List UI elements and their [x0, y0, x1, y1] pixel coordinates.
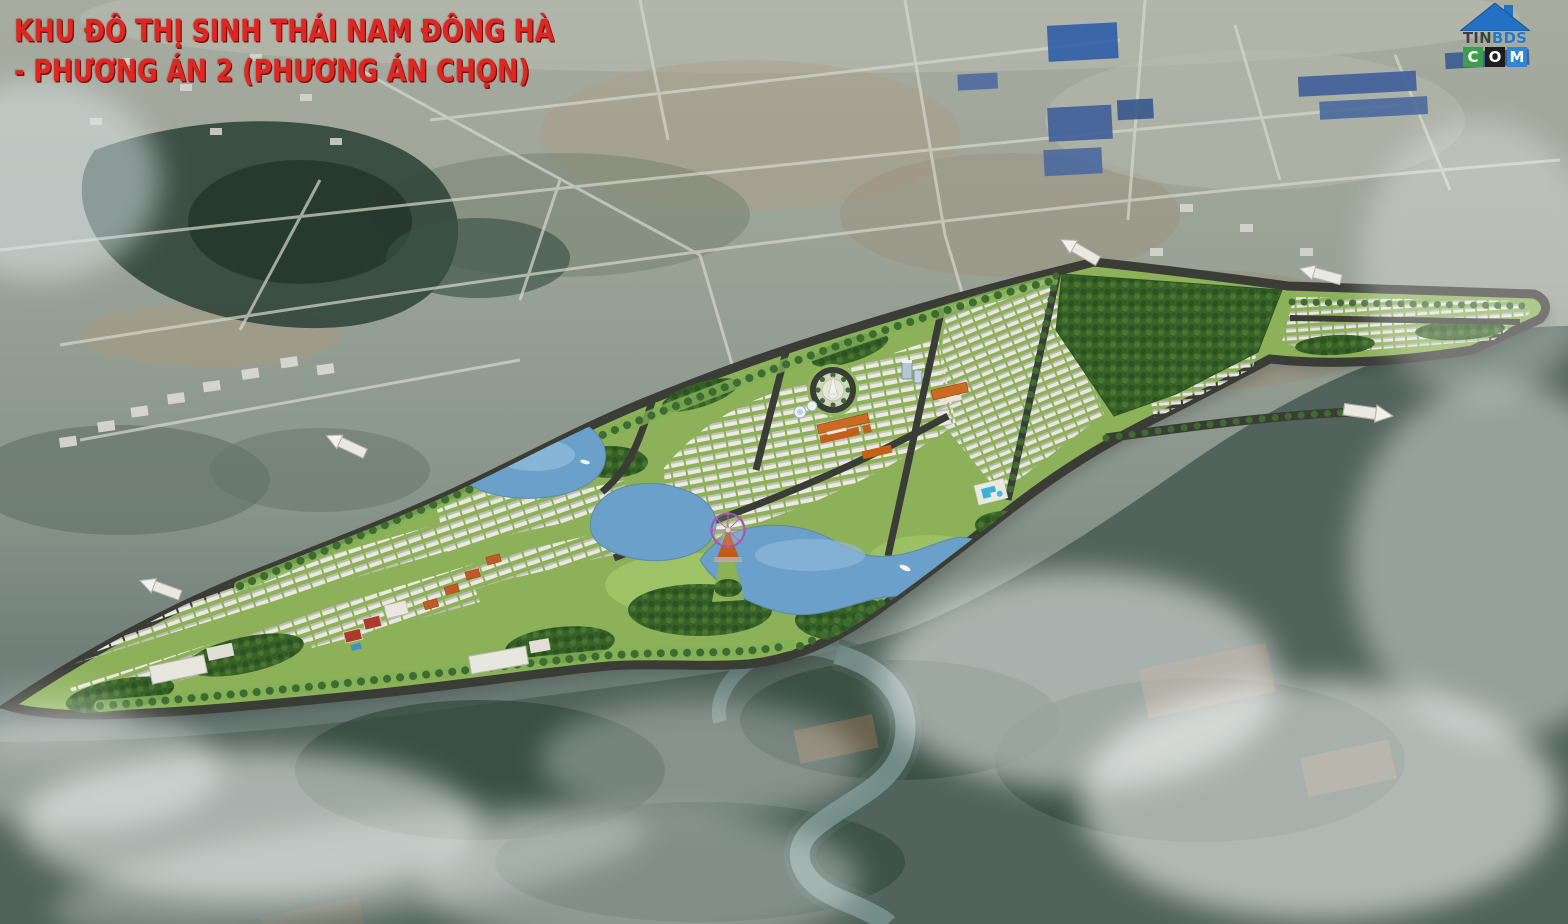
house-roof-icon — [1460, 3, 1530, 31]
logo-com-row: C O M — [1456, 47, 1534, 67]
logo-letter-o: O — [1485, 47, 1505, 67]
plan-title: KHU ĐÔ THỊ SINH THÁI NAM ĐÔNG HÀ - PHƯƠN… — [14, 12, 554, 92]
logo-text-tin: TIN — [1463, 29, 1492, 47]
logo-letter-c: C — [1463, 47, 1483, 67]
logo-wordmark: TINBDS — [1456, 31, 1534, 45]
aerial-render — [0, 0, 1568, 924]
logo-text-bds: BDS — [1492, 29, 1527, 47]
plan-title-line2: - PHƯƠNG ÁN 2 (PHƯƠNG ÁN CHỌN) — [14, 52, 554, 92]
plan-title-line1: KHU ĐÔ THỊ SINH THÁI NAM ĐÔNG HÀ — [14, 12, 554, 52]
tinbds-watermark: TINBDS C O M — [1456, 3, 1534, 67]
logo-letter-m: M — [1507, 47, 1527, 67]
masterplan-screenshot: KHU ĐÔ THỊ SINH THÁI NAM ĐÔNG HÀ - PHƯƠN… — [0, 0, 1568, 924]
